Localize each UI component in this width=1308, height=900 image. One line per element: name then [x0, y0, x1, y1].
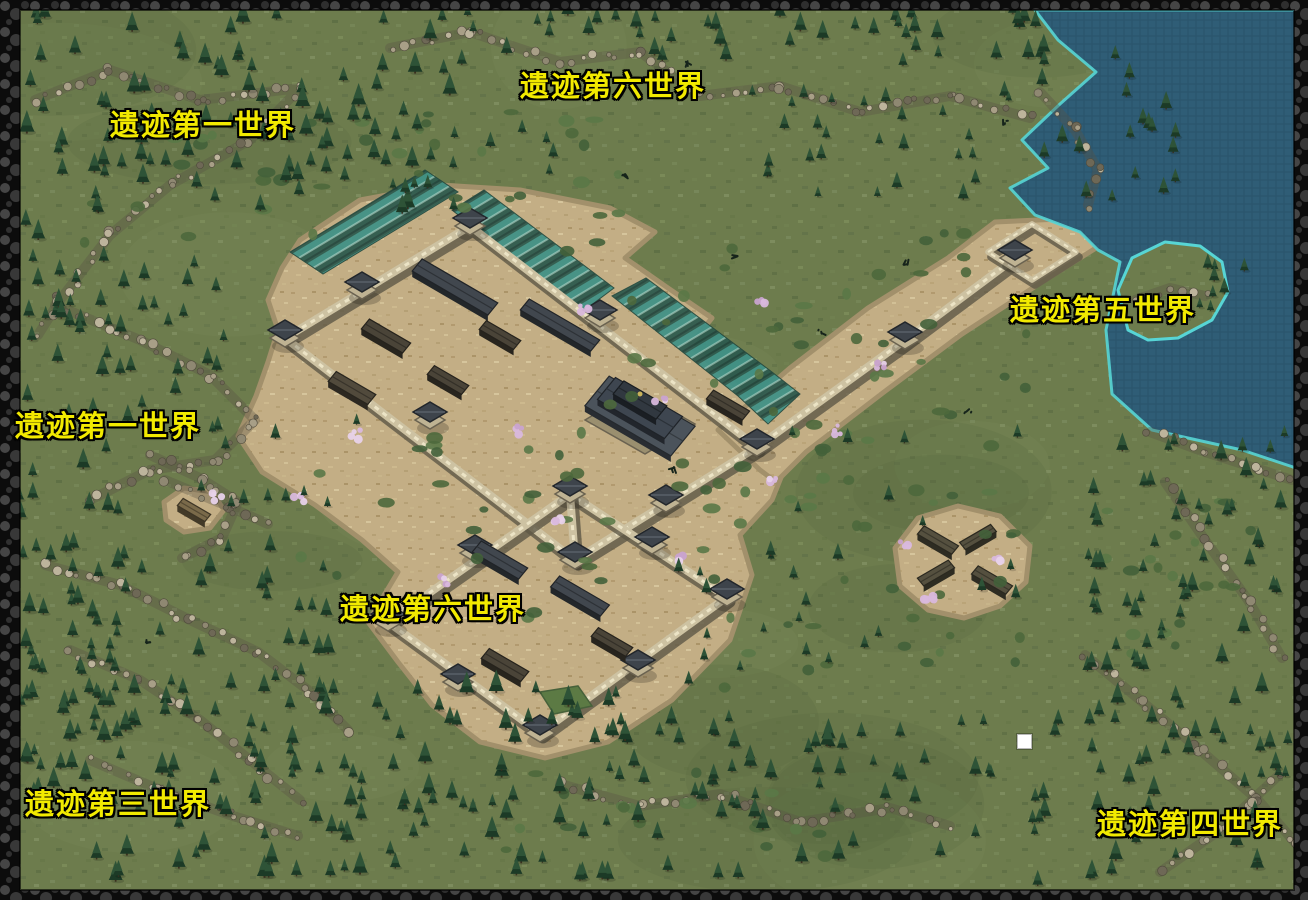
- world-map-canvas[interactable]: [0, 0, 1308, 900]
- game-screen: 遗迹第六世界遗迹第一世界遗迹第五世界遗迹第一世界遗迹第六世界遗迹第三世界遗迹第四…: [0, 0, 1308, 900]
- player-position-marker: [1017, 734, 1032, 749]
